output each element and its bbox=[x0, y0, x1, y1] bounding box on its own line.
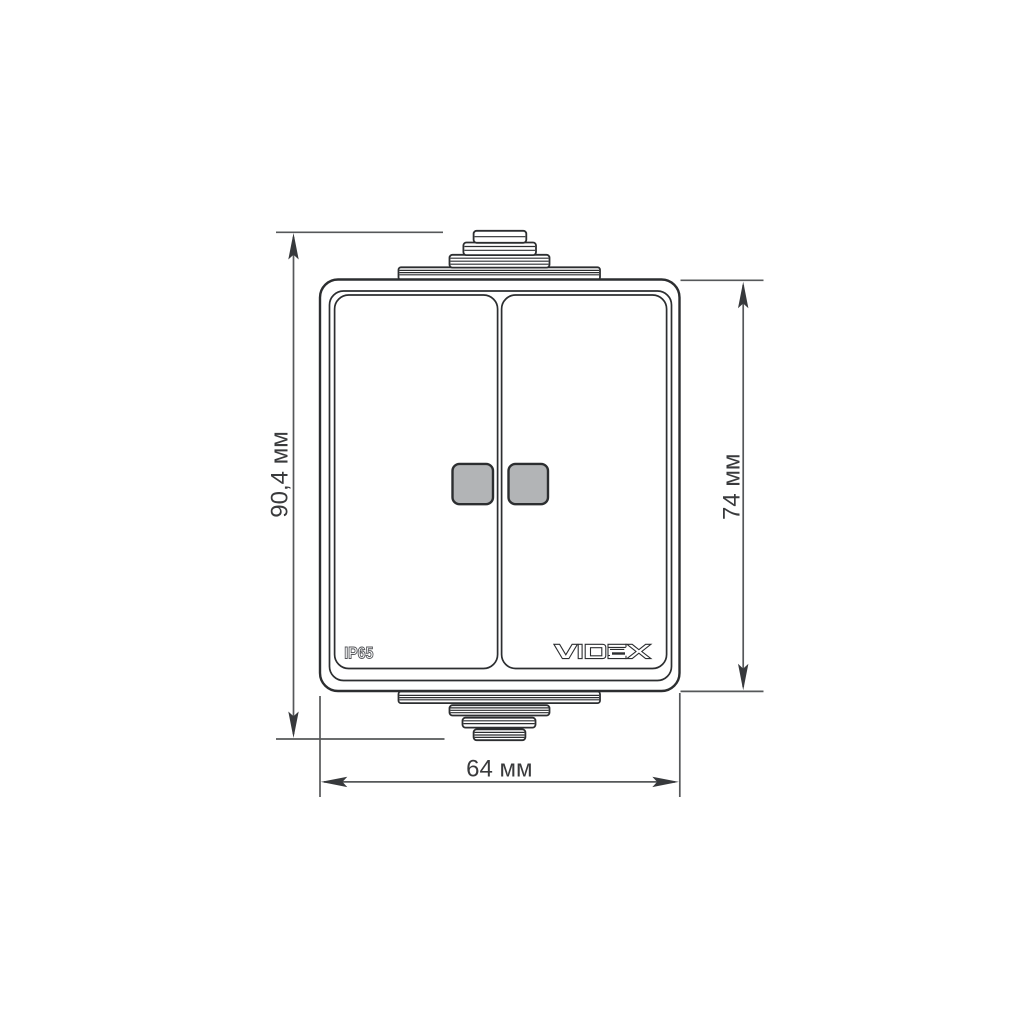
svg-text:64 мм: 64 мм bbox=[466, 756, 532, 783]
svg-text:74 мм: 74 мм bbox=[719, 454, 746, 520]
svg-text:90,4 мм: 90,4 мм bbox=[267, 431, 294, 517]
svg-text:IP65: IP65 bbox=[344, 644, 373, 662]
